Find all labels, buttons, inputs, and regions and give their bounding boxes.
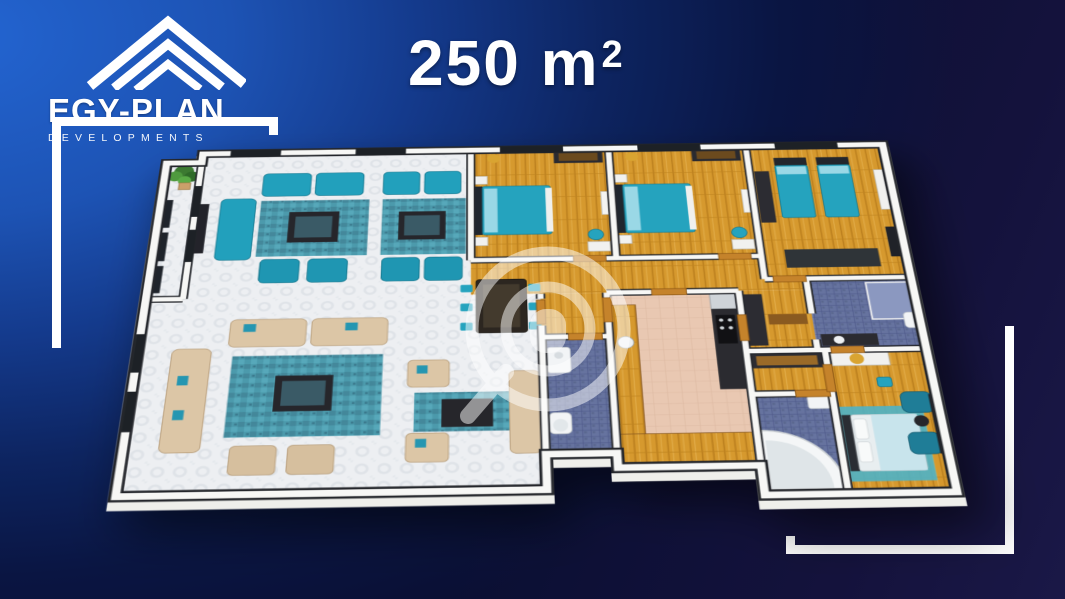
frame-line — [52, 117, 61, 348]
frame-line — [1005, 326, 1014, 554]
watermark-house-search-icon — [448, 234, 648, 444]
page-background: EGY-PLAN DEVELOPMENTS 250 m2 — [0, 0, 1065, 599]
